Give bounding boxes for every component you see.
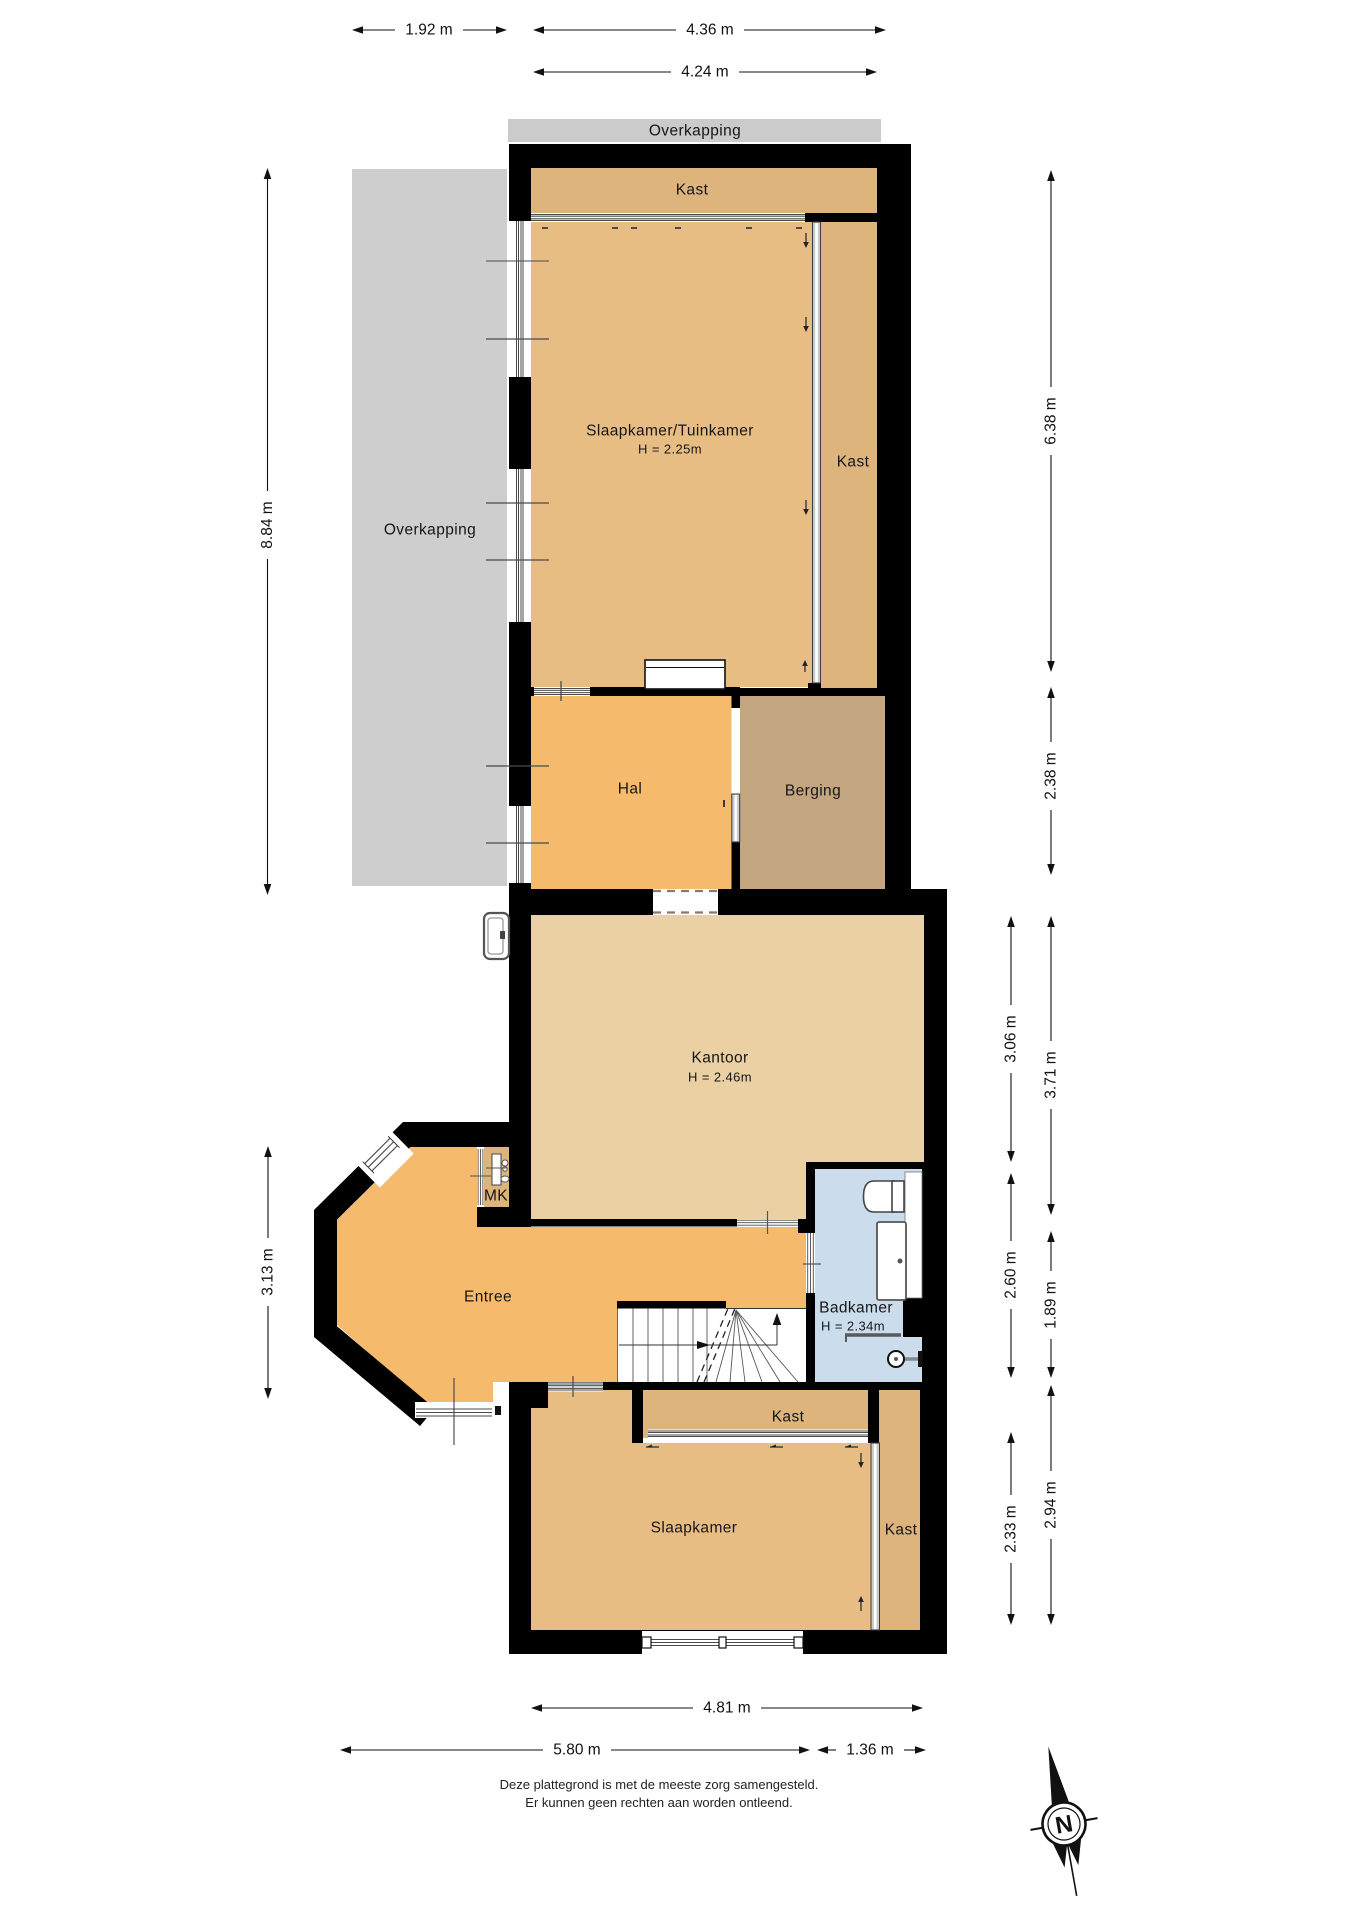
svg-text:Overkapping: Overkapping [384,522,476,539]
svg-text:Kast: Kast [885,1522,918,1539]
svg-text:Slaapkamer/Tuinkamer: Slaapkamer/Tuinkamer [586,423,754,440]
svg-text:5.80 m: 5.80 m [553,1742,600,1759]
svg-text:4.24 m: 4.24 m [681,64,728,81]
svg-text:4.36 m: 4.36 m [686,22,733,39]
svg-text:3.13 m: 3.13 m [260,1248,277,1295]
svg-text:2.94 m: 2.94 m [1043,1481,1060,1528]
svg-text:2.60 m: 2.60 m [1003,1251,1020,1298]
svg-text:Kantoor: Kantoor [691,1050,748,1067]
svg-text:Kast: Kast [837,454,870,471]
svg-text:Overkapping: Overkapping [649,123,741,140]
svg-text:8.84 m: 8.84 m [259,501,276,548]
svg-text:3.06 m: 3.06 m [1003,1015,1020,1062]
svg-text:1.89 m: 1.89 m [1043,1281,1060,1328]
svg-text:Deze plattegrond is met de mee: Deze plattegrond is met de meeste zorg s… [500,1777,819,1792]
svg-text:Berging: Berging [785,783,841,800]
svg-text:Badkamer: Badkamer [819,1300,893,1317]
svg-text:1.36 m: 1.36 m [846,1742,893,1759]
svg-text:H = 2.46m: H = 2.46m [688,1070,752,1085]
svg-text:Kast: Kast [772,1409,805,1426]
svg-text:4.81 m: 4.81 m [703,1700,750,1717]
svg-text:Kast: Kast [676,182,709,199]
svg-text:2.33 m: 2.33 m [1003,1505,1020,1552]
svg-text:Slaapkamer: Slaapkamer [651,1520,738,1537]
svg-text:Entree: Entree [464,1289,512,1306]
svg-text:2.38 m: 2.38 m [1043,752,1060,799]
svg-text:MK: MK [484,1188,508,1205]
svg-text:Hal: Hal [618,781,642,798]
svg-text:1.92 m: 1.92 m [405,22,452,39]
svg-text:H = 2.34m: H = 2.34m [821,1319,885,1334]
svg-text:3.71 m: 3.71 m [1043,1051,1060,1098]
svg-text:H = 2.25m: H = 2.25m [638,442,702,457]
svg-text:Er kunnen geen rechten aan wor: Er kunnen geen rechten aan worden ontlee… [525,1795,792,1810]
svg-text:6.38 m: 6.38 m [1043,397,1060,444]
